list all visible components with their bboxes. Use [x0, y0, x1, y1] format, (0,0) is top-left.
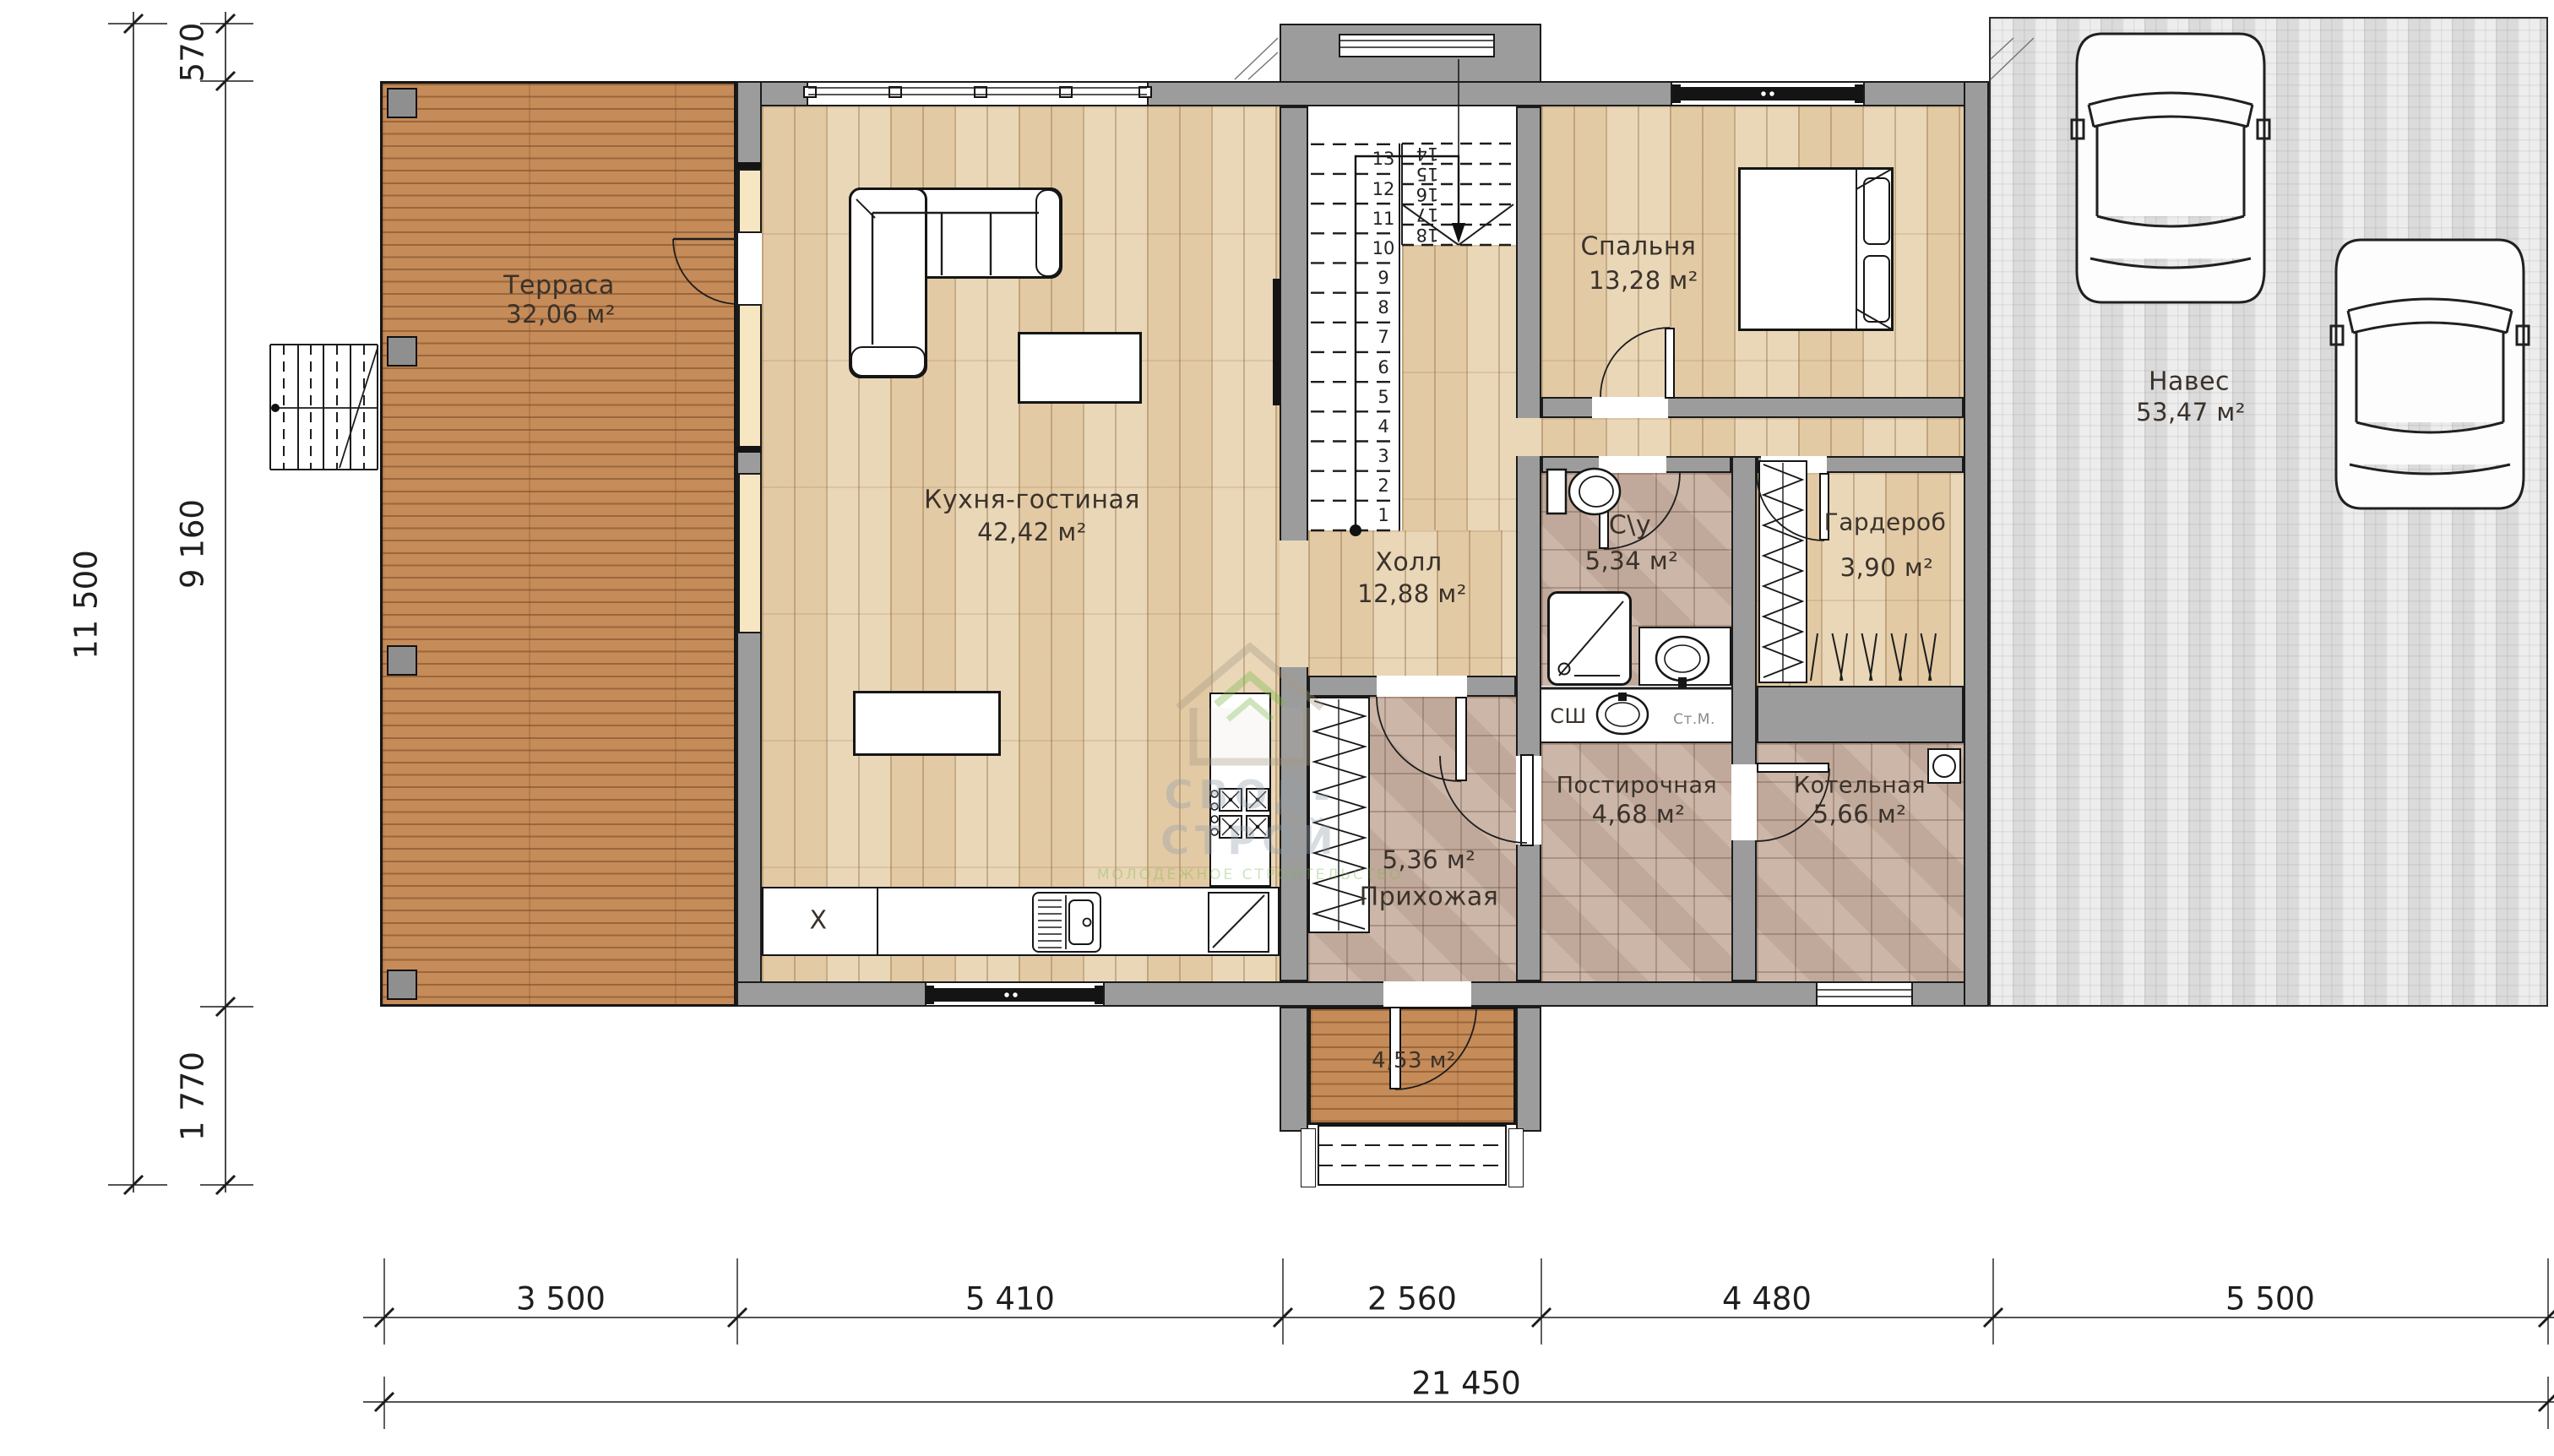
porch-steps: [1318, 1125, 1507, 1186]
wall-right: [1964, 81, 1989, 1007]
room-label-kitchen: Кухня-гостиная: [924, 486, 1140, 515]
doorway-bedroom: [1592, 397, 1668, 418]
room-label-terrace: Терраса: [503, 271, 615, 301]
door-leaf-entry-laundry: [1520, 754, 1534, 846]
label-dryer: СШ: [1550, 704, 1586, 728]
window-cap: [736, 446, 762, 453]
room-label-bedroom: Спальня: [1581, 232, 1697, 262]
terrace-window-1: [738, 169, 762, 233]
wall-mid-vertical: [1731, 456, 1757, 981]
floor-plan: СВОД-СТРОЙ МОЛОДЕЖНОЕ СТРОИТЕЛЬСТВО Терр…: [0, 0, 2554, 1456]
kitchen-bottom-window-sash: [931, 988, 1098, 1002]
door-leaf-bathroom: [1599, 473, 1609, 549]
room-area-laundry: 4,68 м²: [1592, 800, 1686, 829]
room-label-hall: Холл: [1375, 548, 1442, 578]
window-mullion: [1138, 86, 1152, 98]
wall-porch-right: [1516, 1007, 1541, 1132]
door-leaf-boiler-room: [1757, 763, 1829, 773]
room-area-boiler: 5,66 м²: [1813, 800, 1907, 829]
stair-step-number: 14: [1416, 144, 1439, 164]
boiler-room-window: [1816, 981, 1913, 1007]
pillow: [1863, 177, 1890, 245]
room-area-hall: 12,88 м²: [1357, 579, 1467, 608]
stairwell-side-floor: [1402, 245, 1516, 530]
sofa-armrest: [1035, 189, 1061, 277]
window-cap: [736, 162, 762, 169]
room-label-canopy: Навес: [2149, 367, 2230, 397]
room-area-terrace: 32,06 м²: [506, 300, 616, 329]
stair-step-number: 2: [1378, 475, 1388, 496]
window-cap: [1095, 986, 1103, 1004]
wall-wardrobe-boiler: [1757, 686, 1964, 743]
room-label-wardrobe: Гардероб: [1824, 508, 1947, 536]
room-area-porch: 4,53 м²: [1372, 1048, 1456, 1073]
label-washer: Ст.М.: [1673, 711, 1715, 728]
terrace-post: [387, 88, 417, 118]
door-leaf-hall-entryway: [1455, 697, 1467, 781]
room-area-entryway: 5,36 м²: [1383, 845, 1476, 874]
dim-left-total: 11 500: [68, 550, 105, 659]
door-leaf-bedroom: [1665, 328, 1675, 399]
pillow: [1863, 255, 1890, 323]
dim-bottom-5500: 5 500: [2225, 1281, 2315, 1317]
dim-bottom-5410: 5 410: [965, 1281, 1055, 1317]
canopy-paving: [1989, 17, 2548, 1007]
doorway-hall-entryway: [1377, 676, 1467, 697]
window-mullion: [1059, 86, 1073, 98]
shower-tray: [1547, 591, 1632, 686]
dim-left-9160: 9 160: [175, 499, 211, 589]
boiler: [1927, 748, 1961, 784]
stair-bay-window: [1339, 34, 1495, 57]
terrace-deck-floor: [380, 81, 736, 1007]
dim-bottom-3500: 3 500: [516, 1281, 606, 1317]
stair-step-number: 9: [1378, 268, 1388, 288]
kitchen-sink: [1032, 892, 1101, 953]
room-label-boiler: Котельная: [1794, 773, 1926, 799]
room-label-laundry: Постирочная: [1557, 773, 1718, 799]
terrace-window-3: [738, 473, 762, 633]
stair-step-number: 10: [1372, 238, 1395, 258]
stair-step-number: 13: [1372, 149, 1395, 169]
sofa-armrest: [850, 346, 926, 377]
dim-bottom-4480: 4 480: [1722, 1281, 1812, 1317]
window-cap: [1672, 84, 1681, 103]
window-cap: [1855, 84, 1863, 103]
room-area-bedroom: 13,28 м²: [1589, 266, 1698, 295]
wall-bedroom-block-left: [1516, 106, 1541, 981]
porch-step-rail: [1301, 1128, 1316, 1187]
stair-step-number: 11: [1372, 209, 1395, 229]
porch-step-rail: [1508, 1128, 1524, 1187]
stair-step-number: 1: [1378, 505, 1388, 525]
doorway-entrance: [1383, 981, 1471, 1007]
wall-porch-left: [1280, 1007, 1308, 1132]
doorway-bathroom: [1599, 456, 1666, 473]
room-area-wardrobe: 3,90 м²: [1840, 553, 1934, 582]
window-mullion: [974, 86, 987, 98]
fridge: [1208, 892, 1269, 953]
dim-left-570: 570: [175, 23, 211, 83]
stair-step-number: 7: [1378, 327, 1388, 347]
stair-step-number: 8: [1378, 297, 1388, 318]
stair-step-number: 17: [1416, 204, 1439, 225]
window-mullion: [803, 86, 817, 98]
dining-table: [853, 691, 1001, 756]
kitchen-counter-right: [1209, 693, 1271, 887]
room-area-canopy: 53,47 м²: [2136, 398, 2246, 426]
terrace-post: [387, 970, 417, 1000]
terrace-post: [387, 336, 417, 367]
doorway-boiler-room: [1731, 764, 1757, 840]
bedroom-window-sash: [1677, 87, 1858, 101]
passage-kitchen-hall: [1280, 541, 1308, 667]
room-area-kitchen: 42,42 м²: [977, 518, 1087, 546]
stair-step-number: 6: [1378, 357, 1388, 378]
stair-step-number: 3: [1378, 446, 1388, 466]
doorway-terrace: [738, 233, 762, 304]
stair-step-number: 12: [1372, 179, 1395, 199]
stair-step-number: 16: [1416, 184, 1439, 204]
room-area-bathroom: 5,34 м²: [1585, 546, 1679, 575]
stair-step-number: 15: [1416, 164, 1439, 184]
terrace-window-2: [738, 304, 762, 448]
window-cap: [926, 986, 934, 1004]
stair-step-number: 4: [1378, 416, 1388, 437]
dim-bottom-total: 21 450: [1411, 1366, 1520, 1402]
stair-step-number: 5: [1378, 387, 1388, 407]
wardrobe-rack: [1758, 460, 1807, 683]
room-label-bathroom: С\у: [1609, 511, 1651, 541]
stair-step-number: 18: [1416, 225, 1439, 245]
dim-bottom-2560: 2 560: [1367, 1281, 1457, 1317]
terrace-post: [387, 645, 417, 676]
dim-left-1770: 1 770: [175, 1051, 211, 1141]
label-hob: X: [809, 906, 827, 936]
tv: [1273, 279, 1280, 405]
room-label-entryway: Прихожая: [1360, 883, 1499, 912]
window-mullion: [888, 86, 902, 98]
bathroom-vanity: [1638, 627, 1731, 686]
coffee-table: [1018, 332, 1142, 404]
passage-hall-corridor: [1516, 418, 1541, 456]
corridor-floor: [1541, 418, 1964, 456]
